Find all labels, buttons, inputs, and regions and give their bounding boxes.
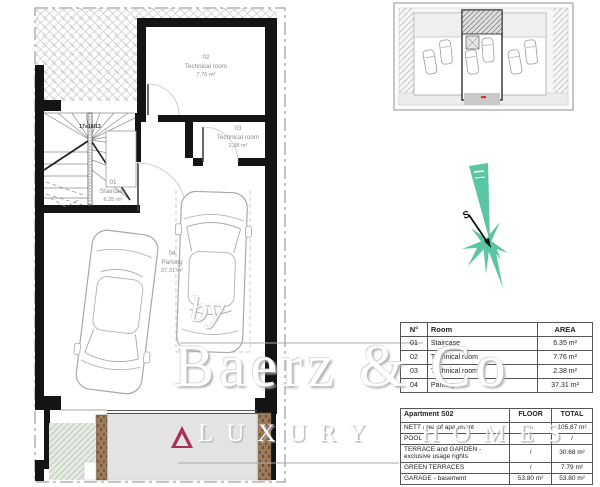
cell-total: 53.80 m² [552,473,593,484]
driveway-zone [49,410,271,480]
svg-text:01: 01 [109,179,117,186]
cell-label: GREEN TERRACES [401,463,510,474]
car-right [171,191,253,354]
cell-total: 105.87 m² [552,423,593,434]
svg-text:04: 04 [168,250,176,257]
cell-area: 2.38 m² [538,365,593,379]
cell-floor: / [510,433,552,444]
svg-text:Technical room: Technical room [217,134,259,141]
summary-row: TERRACE and GARDEN - exclusive usage rig… [401,444,593,463]
floorplan-sheet: 17x18/13 02 [0,0,600,487]
floor-header: FLOOR [510,409,552,423]
col-header-area: AREA [538,323,593,337]
svg-text:7,76 m²: 7,76 m² [197,72,216,78]
compass-rose: S [462,163,508,288]
car-left [70,228,165,396]
summary-title: Apartment S02 [401,409,510,423]
cell-no: 04 [401,379,428,393]
svg-text:37,31 m²: 37,31 m² [161,268,183,274]
svg-text:Parking: Parking [161,259,183,266]
plan-geometry: 17x18/13 02 [35,8,423,482]
cell-total: 7.79 m² [552,463,593,474]
cell-label: TERRACE and GARDEN - exclusive usage rig… [401,444,510,463]
table-header-row: N° Room AREA [401,323,593,337]
cell-area: 37.31 m² [538,379,593,393]
svg-text:Staircase: Staircase [100,188,127,195]
svg-text:2,38 m²: 2,38 m² [229,143,248,149]
summary-row: GARAGE - basement 53.80 m² 53.80 m² [401,473,593,484]
room-label-technical-03: 03 Technical room 2,38 m² [217,125,259,149]
svg-text:Technical room: Technical room [185,63,227,70]
hatched-area [36,8,137,101]
cell-no: 02 [401,351,428,365]
cell-room: Parking [427,379,537,393]
summary-header-row: Apartment S02 FLOOR TOTAL [401,409,593,423]
stair-dimension-note: 17x18/13 [79,124,101,130]
room-schedule-table: N° Room AREA 01 Staircase 6.35 m² 02 Tec… [400,322,593,393]
apartment-summary-table: Apartment S02 FLOOR TOTAL NETT area of a… [400,408,593,485]
cell-area: 6.35 m² [538,337,593,351]
table-row: 03 Technical room 2.38 m² [401,365,593,379]
cell-total: / [552,433,593,444]
site-entry-marker [481,96,486,98]
summary-row: GREEN TERRACES / 7.79 m² [401,463,593,474]
room-label-technical-02: 02 Technical room 7,76 m² [185,54,227,78]
retaining-wall-left [96,415,107,480]
table-row: 01 Staircase 6.35 m² [401,337,593,351]
svg-text:03: 03 [234,125,242,132]
cell-total: 30.68 m² [552,444,593,463]
site-plan [394,3,573,110]
cell-label: GARAGE - basement [401,473,510,484]
cell-room: Staircase [427,337,537,351]
col-header-no: N° [401,323,428,337]
cell-floor: / [510,444,552,463]
cell-room: Technical room [427,365,537,379]
cell-label: NETT area of apartment [401,423,510,434]
col-header-room: Room [427,323,537,337]
summary-row: NETT area of apartment / 105.87 m² [401,423,593,434]
hatched-strip [137,8,277,18]
total-header: TOTAL [552,409,593,423]
cell-no: 03 [401,365,428,379]
table-row: 02 Technical room 7.76 m² [401,351,593,365]
summary-row: POOL / / [401,433,593,444]
cell-label: POOL [401,433,510,444]
garage-door-line [107,411,257,414]
rose-spikes [462,163,508,288]
retaining-wall-right [258,413,271,480]
svg-text:6,35 m²: 6,35 m² [104,197,123,203]
cell-floor: / [510,463,552,474]
table-row: 04 Parking 37.31 m² [401,379,593,393]
cell-no: 01 [401,337,428,351]
cell-floor: 53.80 m² [510,473,552,484]
cell-room: Technical room [427,351,537,365]
cell-area: 7.76 m² [538,351,593,365]
cell-floor: / [510,423,552,434]
svg-text:02: 02 [202,54,210,61]
